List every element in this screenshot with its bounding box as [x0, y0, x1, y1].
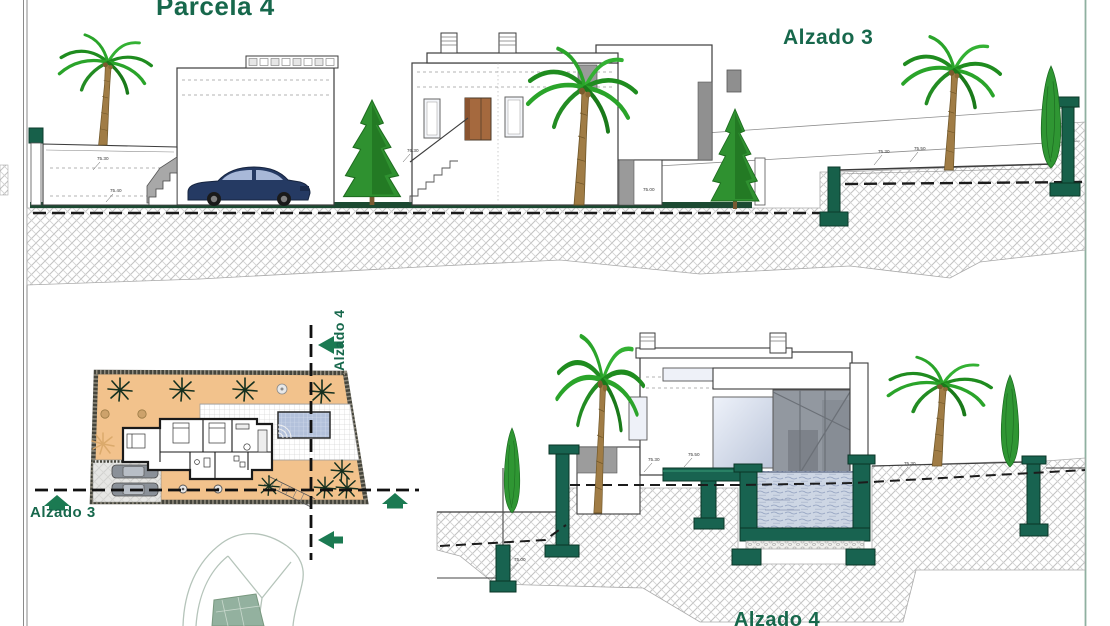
- conifer-tree-icon: [711, 109, 759, 209]
- cypress-tree-icon: [1041, 66, 1060, 168]
- elevation-alzado3: 75.30 75.40 76.30 75.00 75.30 75.50: [27, 33, 1085, 285]
- architectural-sheet: 75.30 75.40 76.30 75.00 75.30 75.50: [0, 0, 1110, 626]
- dimension-label: 75.50: [914, 146, 926, 151]
- elevation4-title: Alzado 4: [712, 609, 842, 626]
- dimension-label: 75.00: [514, 557, 526, 562]
- direction-arrow-left-icon: [318, 531, 343, 549]
- dimension-label: 75.40: [110, 188, 122, 193]
- cypress-tree-icon: [1001, 375, 1018, 467]
- palm-tree-icon: [889, 357, 992, 466]
- dimension-label: 75.30: [878, 149, 890, 154]
- pool-water: [757, 471, 853, 528]
- dimension-label: 76.30: [407, 148, 419, 153]
- elevation3-title: Alzado 3: [783, 26, 873, 50]
- key-map: [183, 534, 303, 626]
- page-title: Parcela 4: [156, 0, 275, 22]
- section-label-alzado4: Alzado 4: [331, 309, 347, 371]
- dimension-label: 75.00: [643, 187, 655, 192]
- section-label-alzado3: Alzado 3: [30, 504, 96, 521]
- dimension-label: 75.30: [904, 461, 916, 466]
- cypress-tree-icon: [504, 428, 520, 513]
- pool-section: [732, 455, 875, 565]
- section-alzado4: 75.00 75.30 75.50 75.30: [437, 333, 1085, 622]
- glass-door: [713, 397, 773, 468]
- glazed-wall: [773, 390, 852, 473]
- direction-arrow-up-icon: [382, 493, 408, 509]
- pool-plan: [278, 412, 330, 438]
- conifer-tree-icon: [344, 100, 401, 205]
- site-plan: [35, 325, 419, 560]
- dimension-label: 75.50: [688, 452, 700, 457]
- dimension-label: 75.30: [648, 457, 660, 462]
- dimension-label: 75.30: [97, 156, 109, 161]
- palm-tree-icon: [60, 35, 152, 145]
- architectural-drawing: 75.30 75.40 76.30 75.00 75.30 75.50: [0, 0, 1110, 626]
- chimney-icon: [441, 33, 516, 53]
- green-wall-cap: [29, 128, 43, 143]
